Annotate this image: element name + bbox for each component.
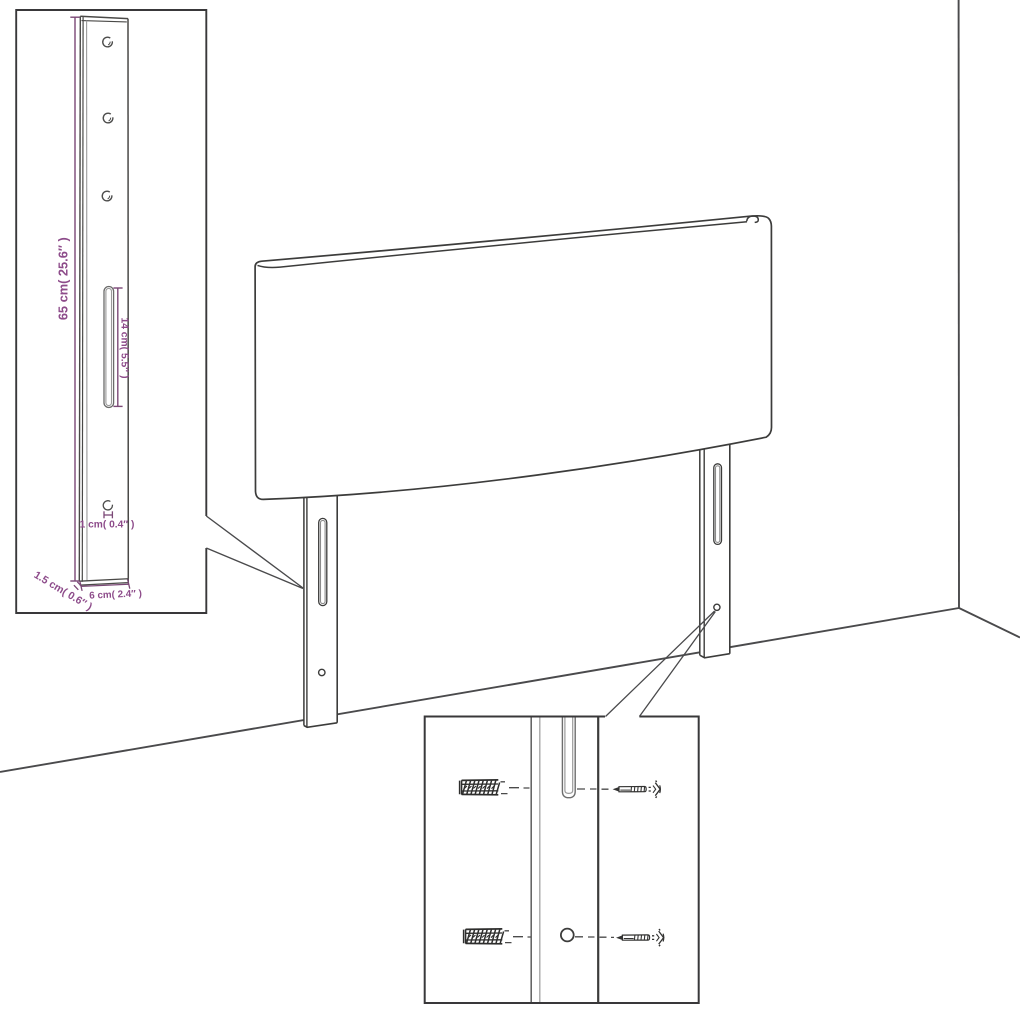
svg-text:65 cm( 25.6″ ): 65 cm( 25.6″ ): [56, 237, 71, 320]
svg-text:14 cm( 5.5″ ): 14 cm( 5.5″ ): [118, 317, 129, 378]
svg-text:1 cm( 0.4″ ): 1 cm( 0.4″ ): [80, 519, 135, 530]
svg-text:6 cm( 2.4″ ): 6 cm( 2.4″ ): [89, 588, 142, 601]
